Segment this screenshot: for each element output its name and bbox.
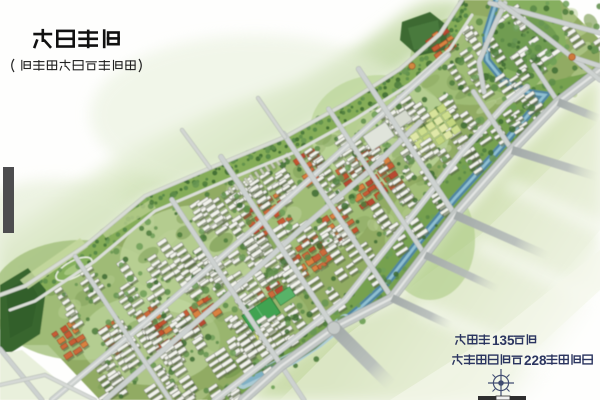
svg-text:228: 228 [524,353,547,368]
svg-text:135: 135 [492,333,515,348]
